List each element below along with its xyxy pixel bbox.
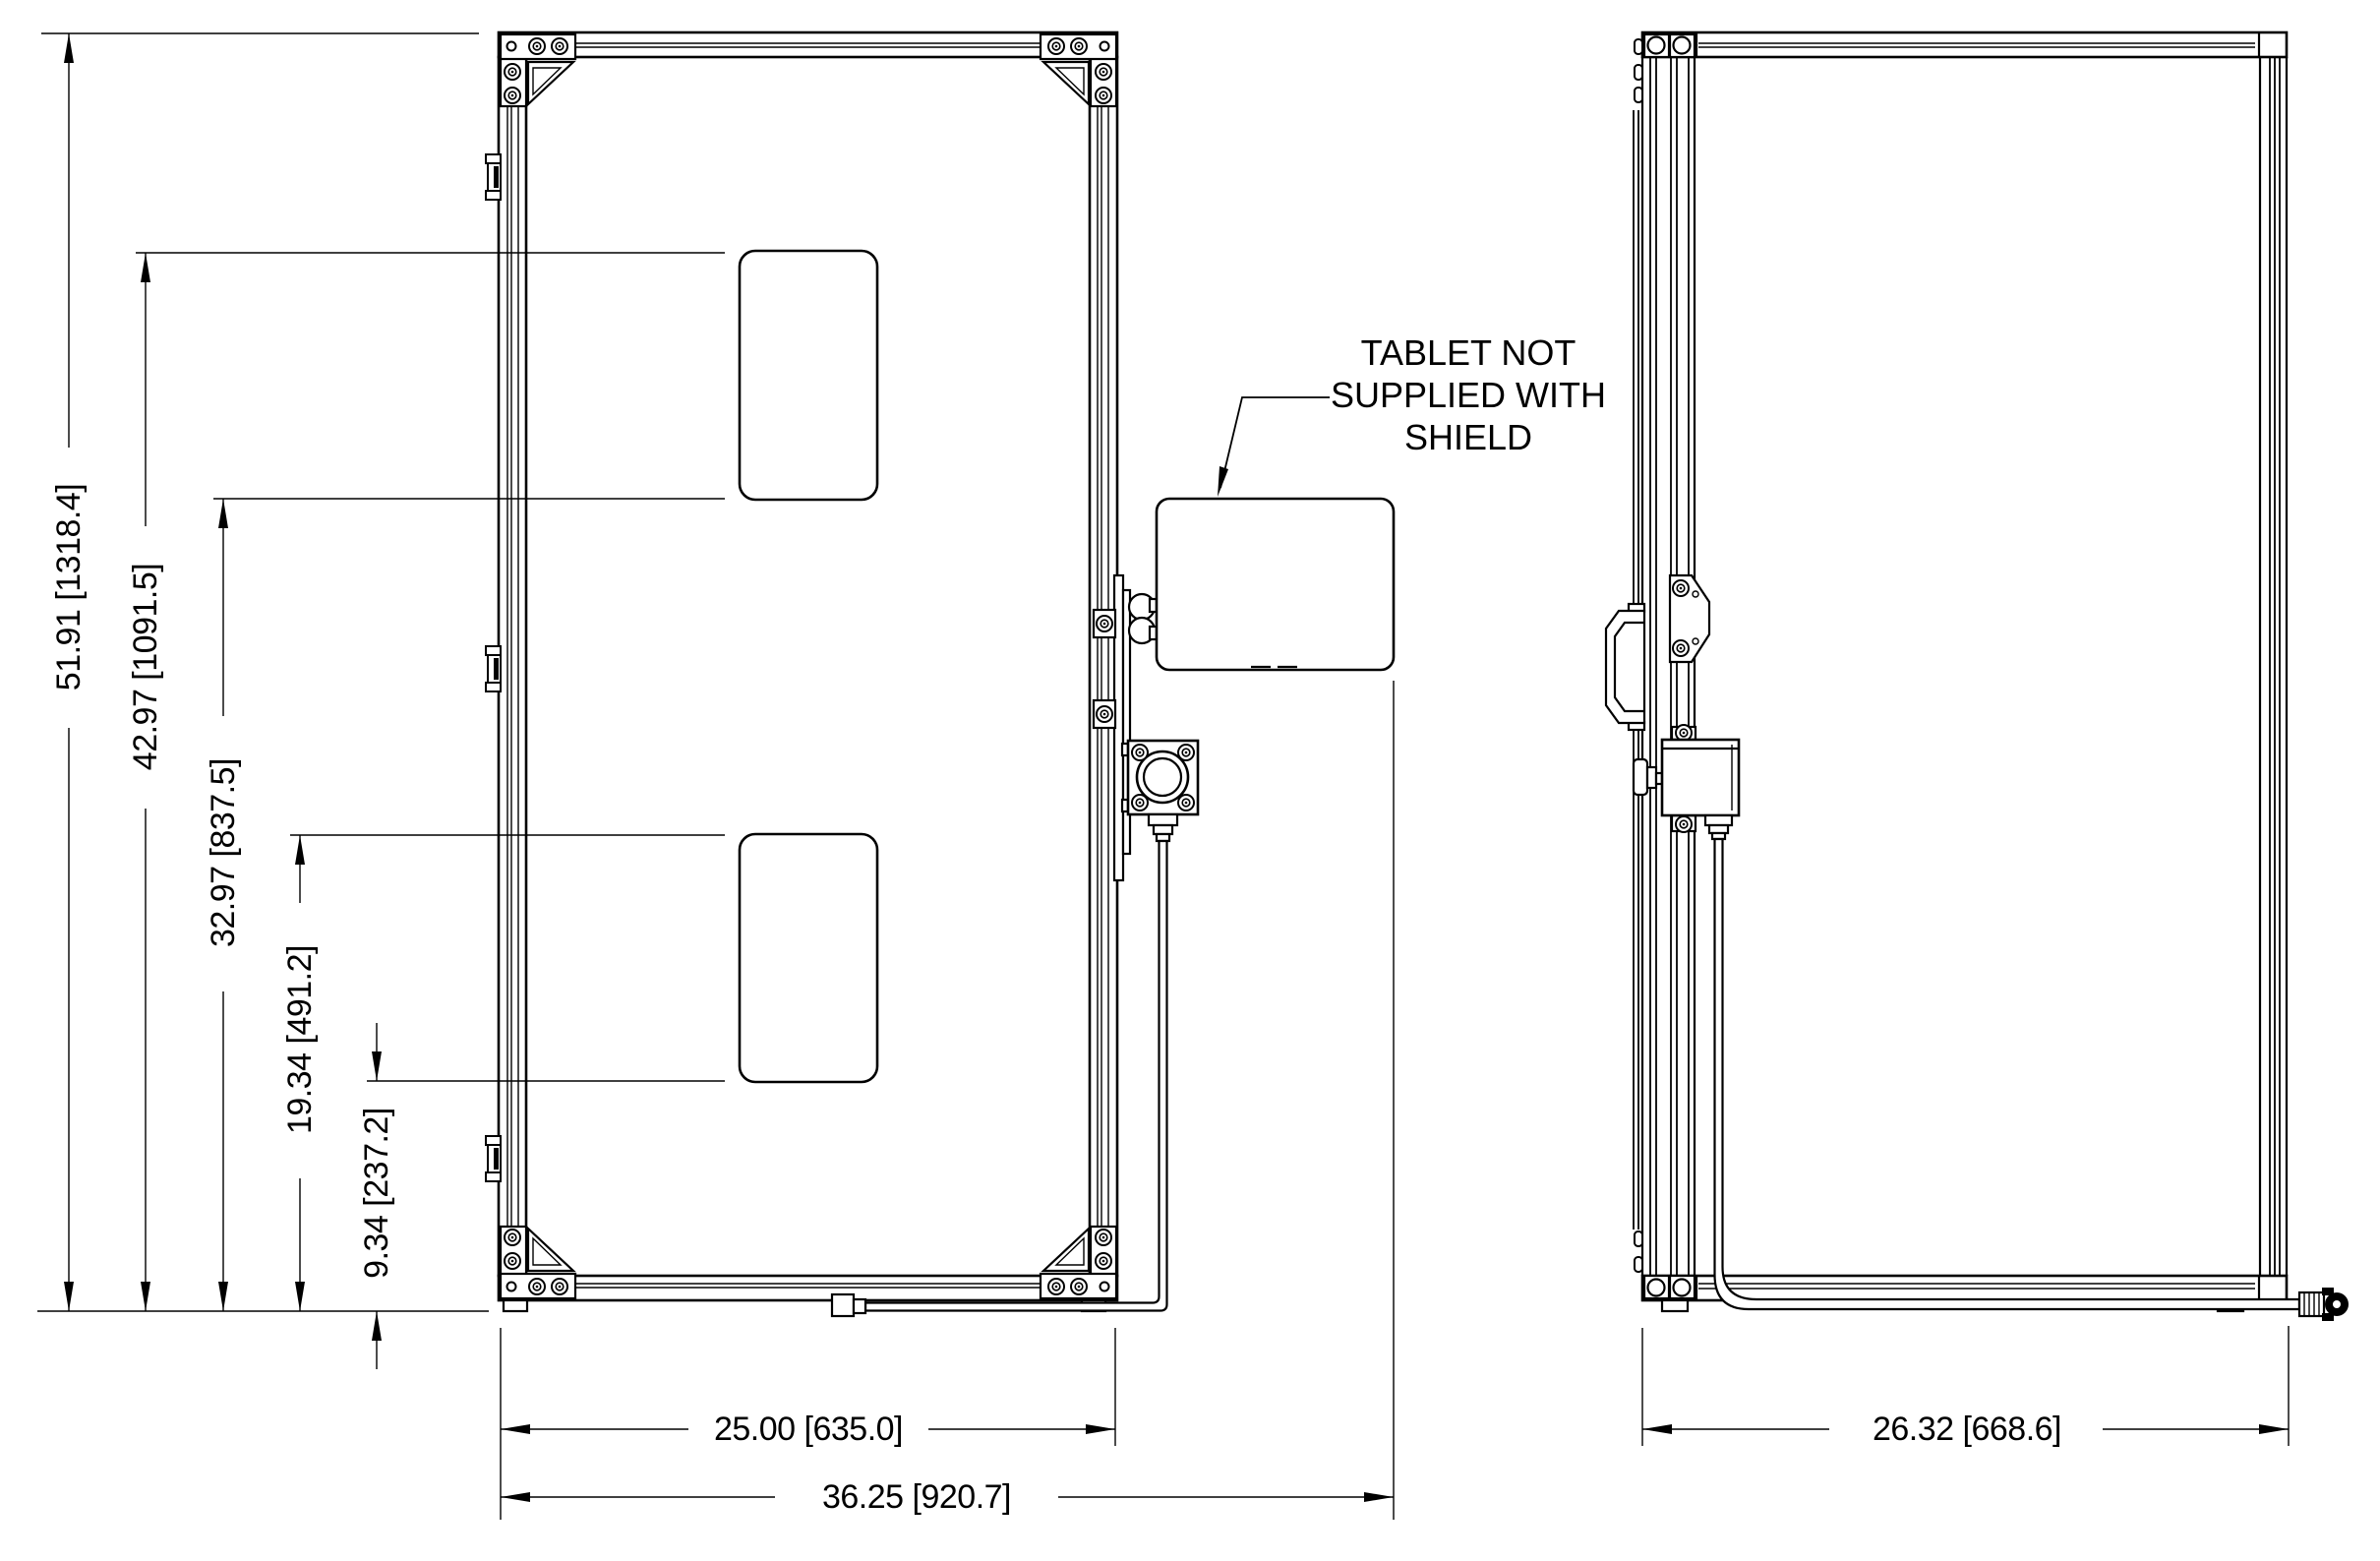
upper-window-port <box>740 251 877 500</box>
lower-window-port <box>740 834 877 1082</box>
hinge-top <box>486 154 501 200</box>
dim-label-frame-width: 25.00 [635.0] <box>714 1411 903 1448</box>
dim-label-overall-width: 36.25 [920.7] <box>822 1478 1011 1516</box>
hinge-middle <box>486 646 501 691</box>
front-frame <box>499 32 1117 1311</box>
front-left-foot <box>504 1300 527 1311</box>
leader-arrow <box>1218 466 1228 497</box>
front-view <box>486 32 1394 1316</box>
side-view <box>1606 32 2349 1321</box>
tablet <box>1157 499 1394 670</box>
tablet-assembly <box>1094 499 1394 880</box>
tablet-note: TABLET NOT SUPPLIED WITH SHIELD <box>1218 332 1606 497</box>
clamp-knob <box>1634 759 1647 795</box>
dim-label-upper-window-bottom: 32.97 [837.5] <box>205 758 242 947</box>
dim-label-overall-height: 51.91 [1318.4] <box>50 484 88 690</box>
dim-label-lower-window-bottom: 9.34 [237.2] <box>358 1108 395 1279</box>
door-handle <box>1606 611 1644 723</box>
note-line-1: TABLET NOT <box>1361 332 1577 373</box>
cable-end-fitting <box>832 1294 854 1316</box>
front-connector-flange <box>1122 741 1198 841</box>
side-right-member <box>2260 57 2287 1276</box>
side-top-rail <box>1642 32 2287 57</box>
dim-label-lower-window-top: 19.34 [491.2] <box>281 945 319 1134</box>
cable-gland-front <box>1149 814 1177 825</box>
side-frame <box>1634 32 2287 1311</box>
side-cable <box>1715 839 2350 1321</box>
drawing-canvas: 51.91 [1318.4] 42.97 [1091.5] 32.97 [837… <box>0 0 2380 1561</box>
corner-bracket-bottom-right <box>1041 1227 1116 1298</box>
plug-threaded-section <box>2299 1292 2324 1316</box>
side-hardware <box>1606 575 1739 839</box>
front-right-post <box>1090 57 1117 1276</box>
hinge-bottom <box>486 1136 501 1181</box>
corner-bracket-top-right <box>1041 34 1116 106</box>
front-left-post <box>499 57 526 1276</box>
technical-drawing: 51.91 [1318.4] 42.97 [1091.5] 32.97 [837… <box>0 0 2380 1561</box>
cable-gland-side <box>1705 815 1732 825</box>
side-pivot-blocks <box>1644 34 1695 1298</box>
cable-side-run <box>1715 839 2300 1309</box>
cable-front-run <box>865 841 1167 1311</box>
dimension-labels: 51.91 [1318.4] 42.97 [1091.5] 32.97 [837… <box>50 484 2061 1516</box>
note-line-2: SUPPLIED WITH <box>1331 375 1606 415</box>
dim-label-side-depth: 26.32 [668.6] <box>1873 1411 2061 1448</box>
side-left-foot <box>1662 1300 1688 1311</box>
note-line-3: SHIELD <box>1404 417 1532 457</box>
corner-bracket-top-left <box>501 34 575 106</box>
side-connector-box <box>1662 740 1739 815</box>
front-windows <box>740 251 877 1082</box>
dim-42-97 <box>141 253 150 1311</box>
front-top-rail <box>499 32 1117 57</box>
corner-bracket-bottom-left <box>501 1227 575 1298</box>
dim-label-upper-window-top: 42.97 [1091.5] <box>127 564 164 770</box>
